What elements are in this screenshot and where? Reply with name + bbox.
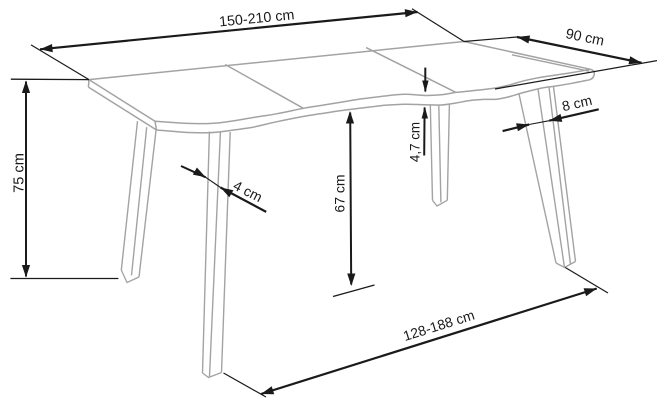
svg-text:4,7 cm: 4,7 cm (408, 122, 423, 162)
svg-text:67 cm: 67 cm (332, 174, 348, 212)
svg-text:75 cm: 75 cm (11, 153, 27, 193)
svg-text:90 cm: 90 cm (564, 26, 605, 50)
